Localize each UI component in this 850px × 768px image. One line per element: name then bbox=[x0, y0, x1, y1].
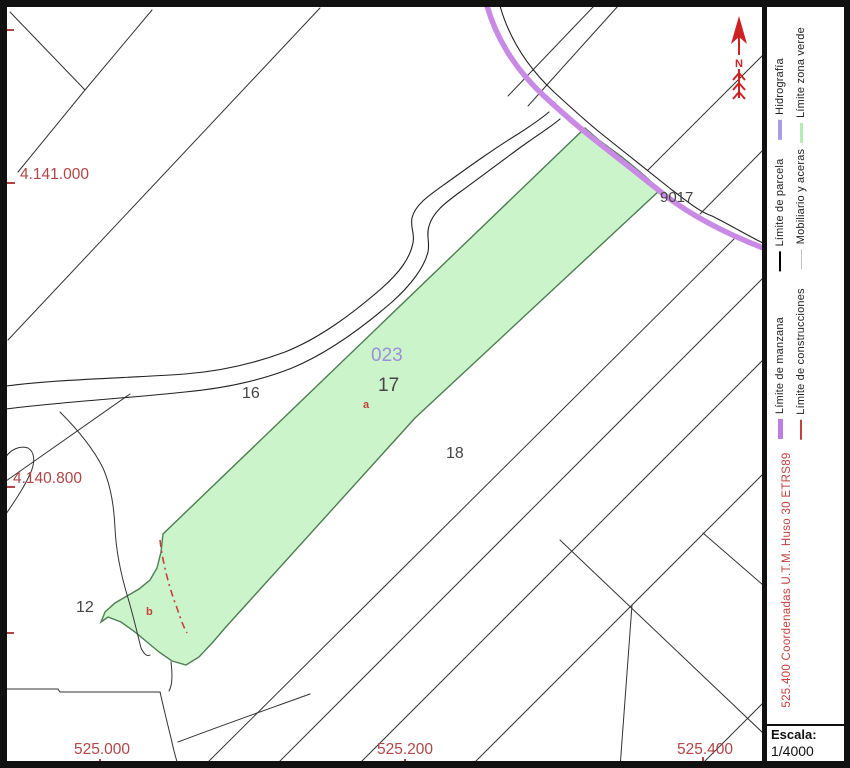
frame-border-bottom bbox=[0, 761, 850, 768]
green-zone-line-swatch bbox=[800, 123, 803, 143]
coordinate-label-y-4140800: 4.140.800 bbox=[13, 470, 82, 487]
coordinate-label-x-525400: 525.400 bbox=[677, 741, 733, 758]
subparcel-label-a: a bbox=[363, 399, 370, 411]
legend-label: Límite zona verde bbox=[795, 27, 807, 118]
scale-box: Escala: 1/4000 bbox=[765, 724, 846, 764]
parcel-limit-line-swatch bbox=[779, 251, 781, 271]
legend-label: Límite de manzana bbox=[774, 317, 786, 414]
street-furniture-line-swatch bbox=[801, 249, 802, 269]
coordinate-label-x-525200: 525.200 bbox=[377, 741, 433, 758]
hydrography-line-swatch bbox=[778, 120, 782, 140]
coordinate-label-x-525000: 525.000 bbox=[74, 741, 130, 758]
map-canvas[interactable]: 4.141.000 4.140.800 525.000 525.200 525.… bbox=[0, 0, 850, 768]
legend-label: Límite de parcela bbox=[774, 159, 786, 247]
block-limit-line-swatch bbox=[778, 419, 783, 439]
north-arrow-icon: N bbox=[731, 16, 747, 99]
construction-limit-line-swatch bbox=[800, 420, 802, 440]
legend-label: Mobiliario y aceras bbox=[795, 149, 807, 245]
parcel-label-12: 12 bbox=[76, 599, 94, 616]
scale-value: 1/4000 bbox=[771, 743, 844, 760]
legend-item-limite-de-construcciones: Límite de construcciones bbox=[795, 288, 807, 439]
coordinate-label-y-4141000: 4.141.000 bbox=[20, 166, 89, 183]
parcel-label-17: 17 bbox=[378, 375, 399, 396]
parcel-label-9017: 9017 bbox=[660, 189, 693, 206]
green-zone-label: 023 bbox=[371, 345, 403, 366]
north-arrow-label: N bbox=[735, 58, 743, 70]
frame-border-top bbox=[0, 0, 850, 7]
legend-item-limite-de-parcela: Límite de parcela bbox=[774, 159, 786, 272]
crs-note: 525.400 Coordenadas U.T.M. Huso 30 ETRS8… bbox=[781, 452, 793, 707]
parcel-label-16: 16 bbox=[242, 385, 260, 402]
legend-label: Límite de construcciones bbox=[795, 288, 807, 414]
frame-border-left bbox=[0, 0, 7, 768]
legend-item-limite-zona-verde: Límite zona verde bbox=[795, 27, 807, 143]
map-sidebar-divider bbox=[762, 0, 767, 768]
legend-item-limite-de-manzana: Límite de manzana bbox=[774, 317, 786, 439]
frame-border-right bbox=[844, 0, 850, 768]
subparcel-label-b: b bbox=[146, 606, 153, 618]
legend-item-hidrografia: Hidrografía bbox=[774, 58, 786, 140]
scale-label: Escala: bbox=[771, 727, 844, 743]
cadastral-map-viewer: 4.141.000 4.140.800 525.000 525.200 525.… bbox=[0, 0, 850, 768]
legend-item-mobiliario-y-aceras: Mobiliario y aceras bbox=[795, 149, 807, 270]
parcel-label-18: 18 bbox=[446, 445, 464, 462]
legend-label: Hidrografía bbox=[774, 58, 786, 115]
